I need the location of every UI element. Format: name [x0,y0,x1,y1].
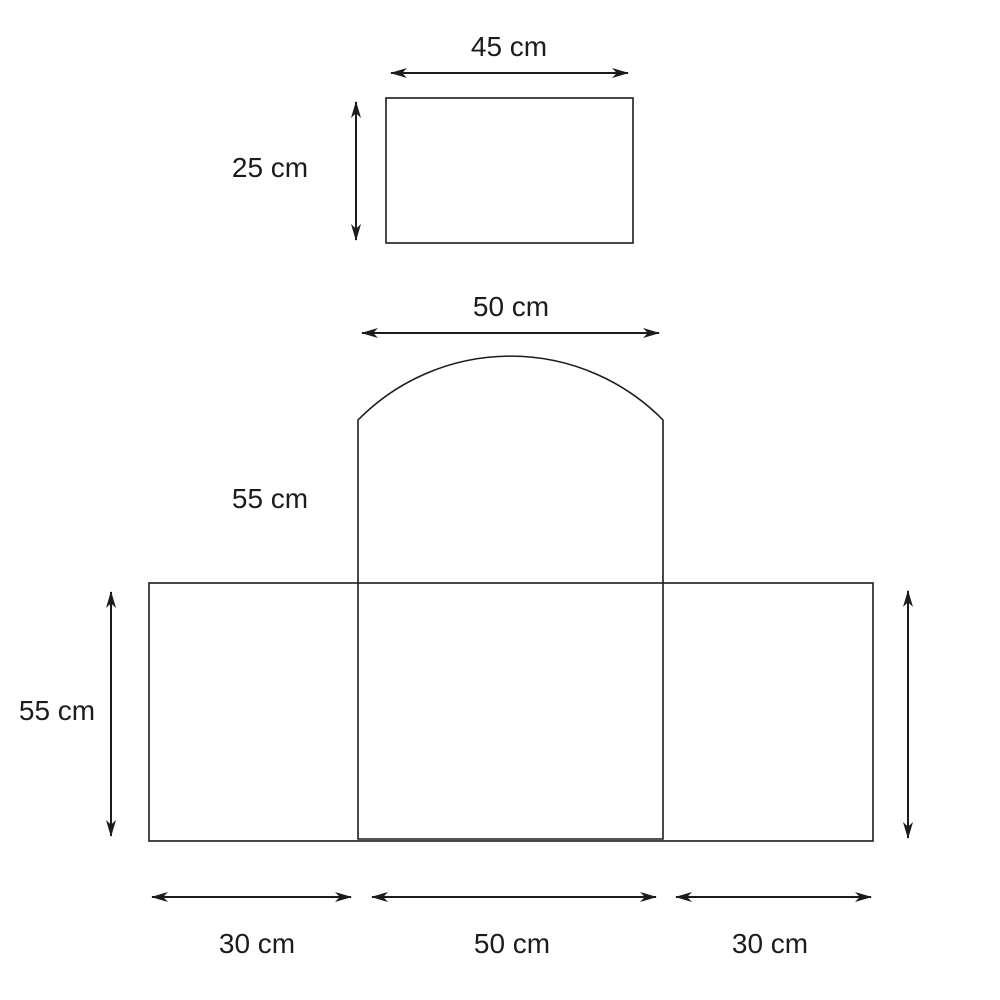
arch-width-dimension-label: 50 cm [473,291,549,322]
top-rectangle [386,98,633,243]
bottom-left-width-dimension-label: 30 cm [219,928,295,959]
panel-height-dimension-label: 55 cm [232,483,308,514]
bottom-center-width-dimension-label: 50 cm [474,928,550,959]
arched-center-panel [358,356,663,839]
diagram-canvas: 45 cm 25 cm 50 cm 55 cm 55 cm 30 cm 50 c… [0,0,1000,1000]
top-height-dimension-label: 25 cm [232,152,308,183]
base-rectangle [149,583,873,841]
dimension-diagram: 45 cm 25 cm 50 cm 55 cm 55 cm 30 cm 50 c… [0,0,1000,1000]
bottom-right-width-dimension-label: 30 cm [732,928,808,959]
top-width-dimension-label: 45 cm [471,31,547,62]
left-height-dimension-label: 55 cm [19,695,95,726]
